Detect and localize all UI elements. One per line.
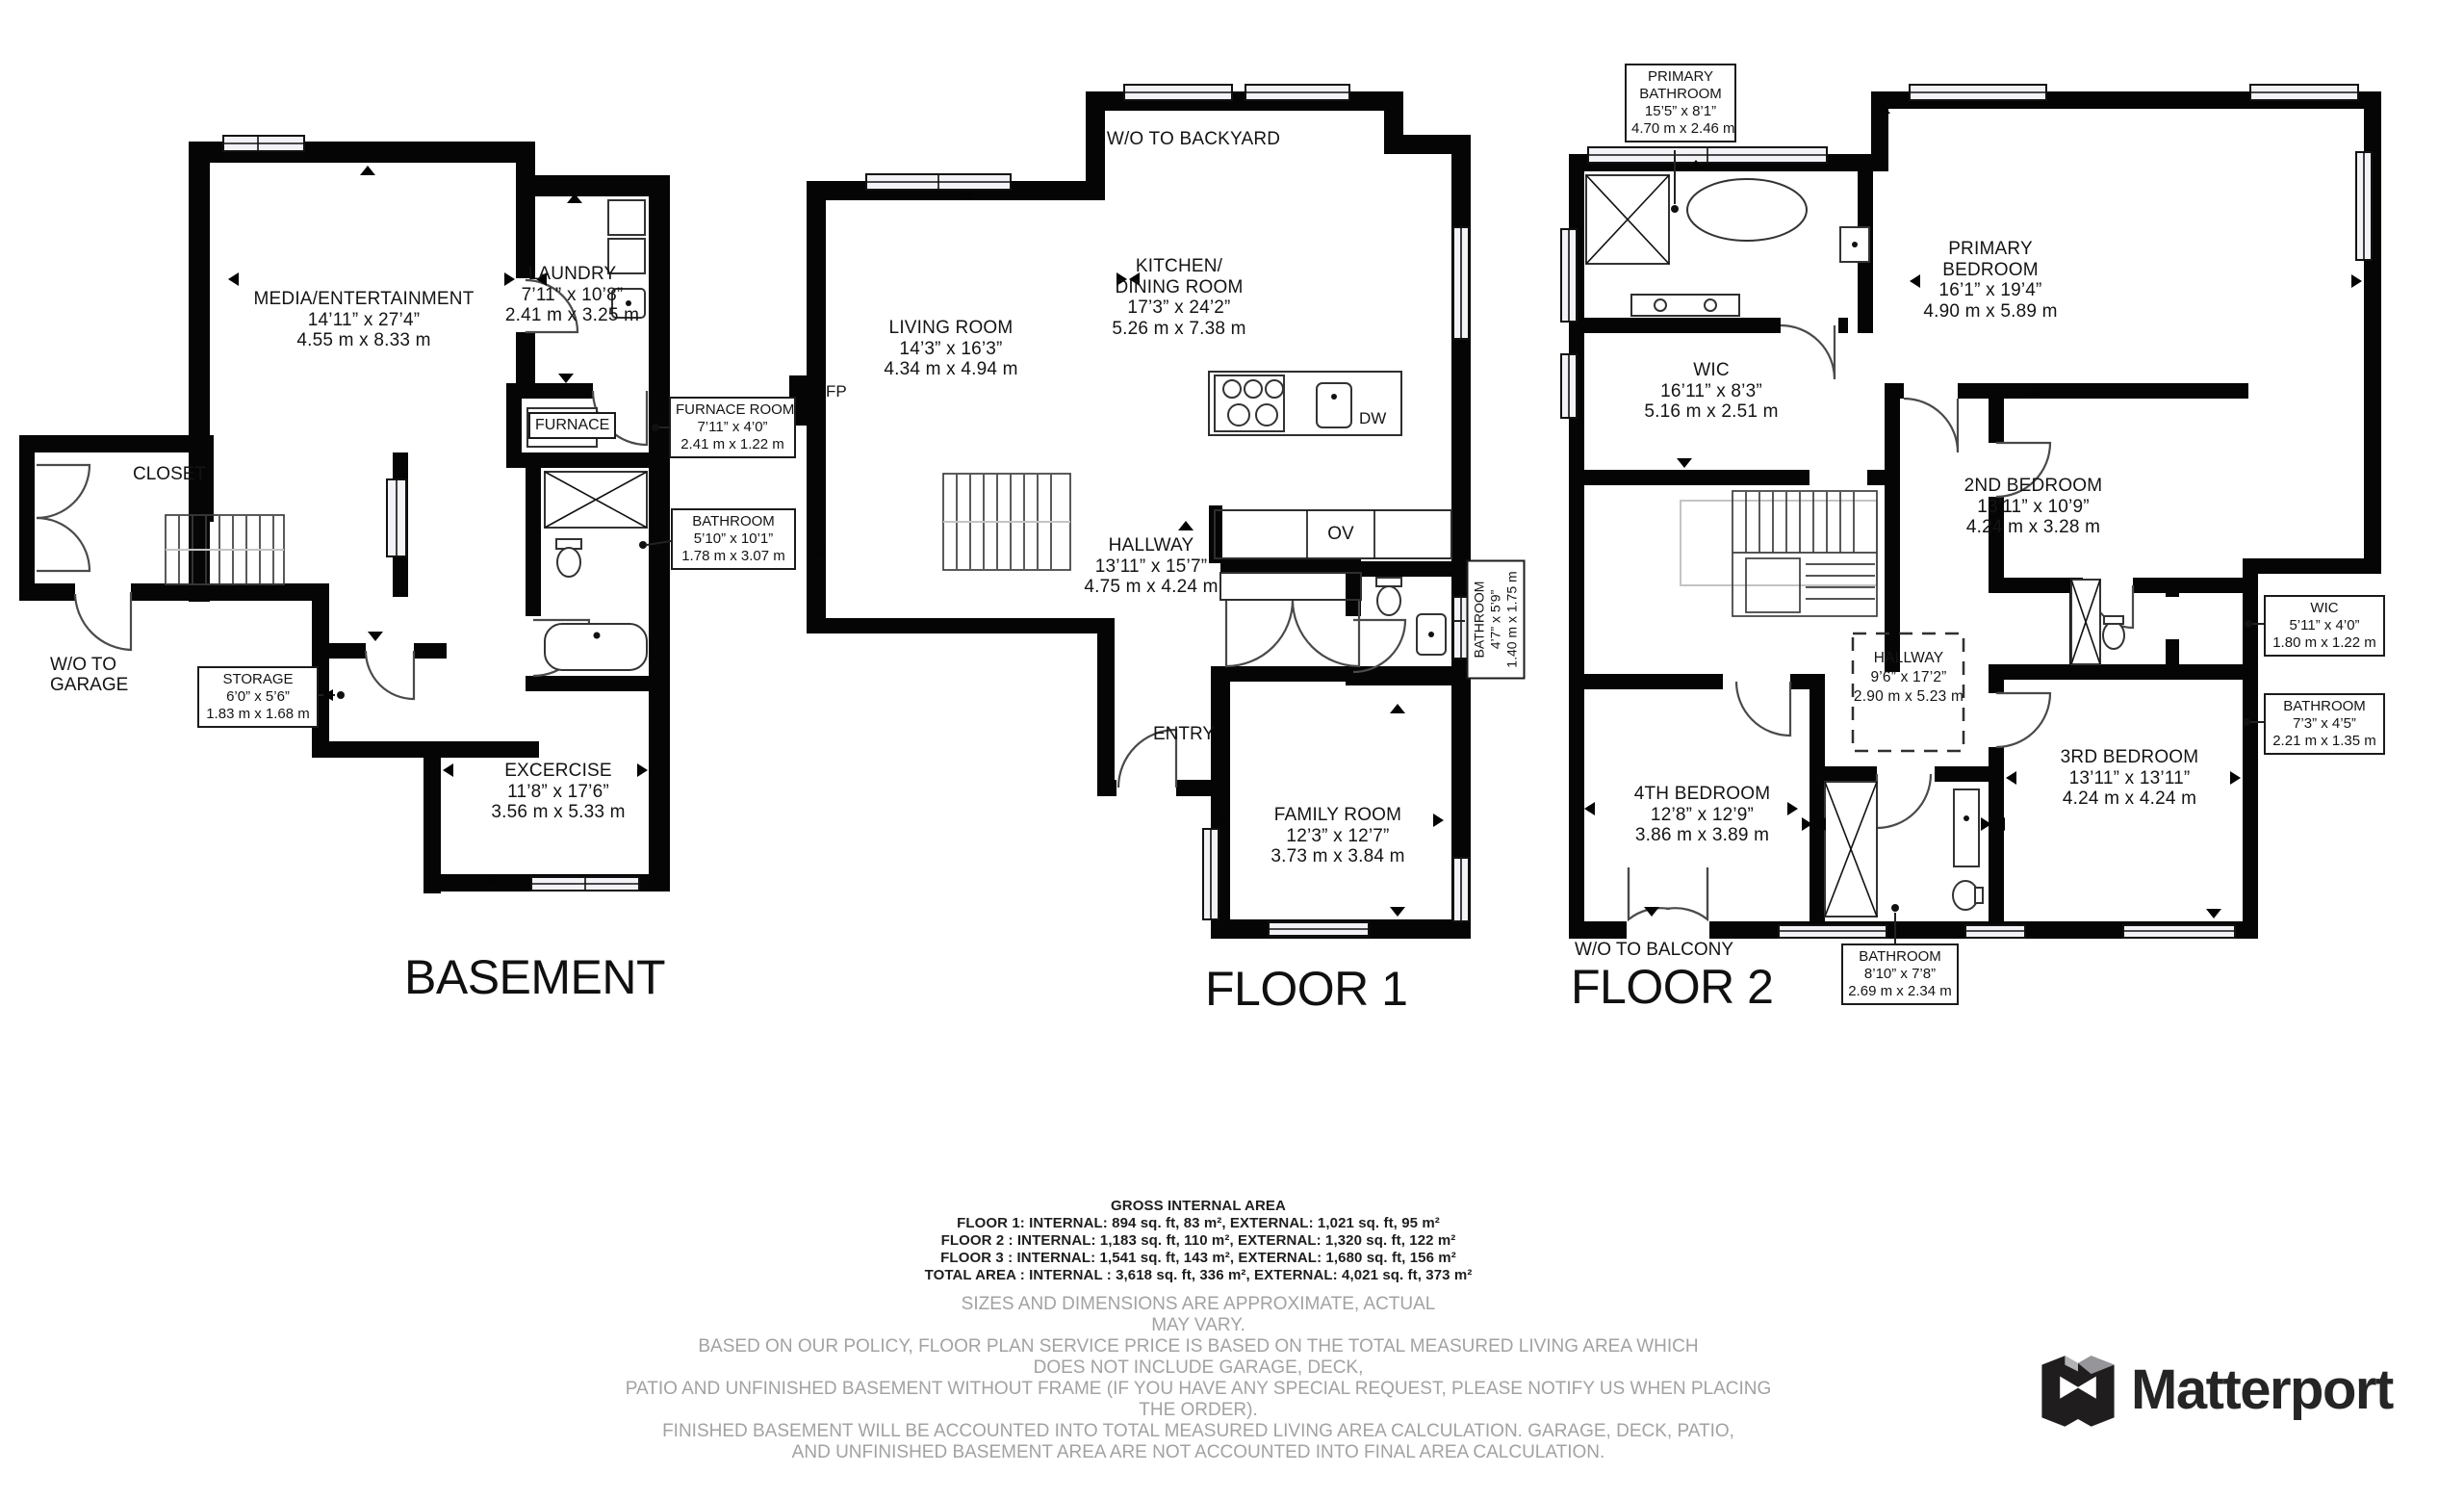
room-label-hallway1: HALLWAY 13’11” x 15’7” 4.75 m x 4.24 m (1045, 535, 1257, 598)
room-label-exercise: EXCERCISE 11’8” x 17’6” 3.56 m x 5.33 m (450, 761, 666, 823)
room-dim-imperial: 14’11” x 27’4” (252, 310, 475, 331)
room-label-bedroom3: 3RD BEDROOM 13’11” x 13’11” 4.24 m x 4.2… (2021, 747, 2238, 810)
shower-icon (545, 472, 647, 528)
footer-notes: GROSS INTERNAL AREA FLOOR 1: INTERNAL: 8… (621, 1198, 1776, 1463)
room-label-hallway2: HALLWAY 9’6” x 17’2” 2.90 m x 5.23 m (1846, 649, 1971, 707)
shower-icon (1586, 175, 1669, 264)
room-label-basement-bathroom: BATHROOM 5’10” x 10’1” 1.78 m x 3.07 m (671, 508, 796, 570)
area-line: TOTAL AREA : INTERNAL : 3,618 sq. ft, 33… (621, 1267, 1776, 1284)
disclaimer-line: AND UNFINISHED BASEMENT AREA ARE NOT ACC… (621, 1442, 1776, 1463)
toilet-icon (556, 539, 581, 577)
matterport-logo-text: Matterport (2131, 1350, 2393, 1431)
wo-balcony-label: W/O TO BALCONY (1575, 940, 1733, 960)
area-line: FLOOR 3 : INTERNAL: 1,541 sq. ft, 143 m²… (621, 1250, 1776, 1267)
dishwasher-label: DW (1359, 408, 1386, 428)
floor2-title: FLOOR 2 (1571, 961, 1773, 1013)
room-label-bathroom2: BATHROOM 7’3” x 4’5” 2.21 m x 1.35 m (2264, 693, 2385, 755)
gross-area-title: GROSS INTERNAL AREA (621, 1198, 1776, 1215)
bathtub-icon (1687, 179, 1807, 241)
entry-label: ENTRY (1153, 724, 1215, 744)
vanity-counter (1954, 789, 1979, 866)
area-line: FLOOR 1: INTERNAL: 894 sq. ft, 83 m², EX… (621, 1215, 1776, 1232)
stove-icon (1215, 375, 1284, 431)
furnace-label: FURNACE (528, 412, 616, 439)
toilet-icon (2103, 616, 2124, 649)
room-label-family: FAMILY ROOM 12’3” x 12’7” 3.73 m x 3.84 … (1232, 805, 1444, 867)
room-label-living: LIVING ROOM 14’3” x 16’3” 4.34 m x 4.94 … (847, 318, 1055, 380)
vanity-counter (1631, 295, 1739, 316)
wo-backyard-label: W/O TO BACKYARD (1083, 129, 1304, 150)
floor1-title: FLOOR 1 (1205, 963, 1407, 1015)
disclaimer-line: DOES NOT INCLUDE GARAGE, DECK, (621, 1357, 1776, 1379)
washer-icon (608, 200, 645, 235)
floor2-stairs (1681, 491, 1877, 616)
room-label-wic2: WIC 5’11” x 4’0” 1.80 m x 1.22 m (2264, 595, 2385, 657)
shower-icon (2071, 580, 2100, 664)
wo-garage-label: W/O TO GARAGE (50, 655, 128, 695)
room-label-wic: WIC 16’11” x 8’3” 5.16 m x 2.51 m (1625, 360, 1798, 423)
oven-label: OV (1309, 524, 1373, 544)
bathtub-icon (545, 624, 647, 670)
floor1-fixtures (1209, 372, 1451, 655)
room-dim-metric: 4.55 m x 8.33 m (252, 330, 475, 351)
basement-stairs (166, 515, 284, 584)
kitchen-sink-icon (1317, 383, 1351, 427)
room-label-kitchen: KITCHEN/ DINING ROOM 17’3” x 24’2” 5.26 … (1083, 256, 1275, 339)
room-label-media: MEDIA/ENTERTAINMENT 14’11” x 27’4” 4.55 … (252, 289, 475, 351)
room-label-bedroom2: 2ND BEDROOM 13’11” x 10’9” 4.24 m x 3.28… (1925, 476, 2142, 538)
floorplan-page: MEDIA/ENTERTAINMENT 14’11” x 27’4” 4.55 … (0, 0, 2464, 1499)
toilet-icon (1376, 578, 1401, 615)
disclaimer-line: PATIO AND UNFINISHED BASEMENT WITHOUT FR… (621, 1379, 1776, 1421)
room-label-furnace-room: FURNACE ROOM 7’11” x 4’0” 2.41 m x 1.22 … (669, 397, 796, 458)
toilet-icon (1953, 881, 1983, 910)
basement-title: BASEMENT (404, 951, 665, 1003)
fireplace-label: FP (826, 381, 847, 401)
closet-label: CLOSET (133, 464, 206, 484)
disclaimer-line: MAY VARY. (621, 1315, 1776, 1336)
disclaimer-line: SIZES AND DIMENSIONS ARE APPROXIMATE, AC… (621, 1294, 1776, 1315)
room-label-laundry: LAUNDRY 7’11” x 10’8” 2.41 m x 3.25 m (493, 264, 652, 326)
room-label-bathroom1: BATHROOM 4’7” x 5’9” 1.40 m x 1.75 m (1467, 560, 1526, 680)
room-label-bathroom3: BATHROOM 8’10” x 7’8” 2.69 m x 2.34 m (1841, 943, 1959, 1005)
room-label-primary-bathroom: PRIMARY BATHROOM 15’5” x 8’1” 4.70 m x 2… (1625, 64, 1736, 142)
disclaimer-line: FINISHED BASEMENT WILL BE ACCOUNTED INTO… (621, 1421, 1776, 1442)
matterport-logo-icon (2037, 1352, 2119, 1431)
disclaimer-line: BASED ON OUR POLICY, FLOOR PLAN SERVICE … (621, 1336, 1776, 1357)
shower-icon (1825, 782, 1877, 917)
room-label-bedroom4: 4TH BEDROOM 12’8” x 12’9” 3.86 m x 3.89 … (1594, 784, 1810, 846)
area-line: FLOOR 2 : INTERNAL: 1,183 sq. ft, 110 m²… (621, 1232, 1776, 1250)
room-label-storage: STORAGE 6’0” x 5’6” 1.83 m x 1.68 m (197, 666, 319, 728)
room-name: MEDIA/ENTERTAINMENT (252, 289, 475, 310)
room-label-primary-bedroom: PRIMARY BEDROOM 16’1” x 19’4” 4.90 m x 5… (1885, 239, 2096, 322)
